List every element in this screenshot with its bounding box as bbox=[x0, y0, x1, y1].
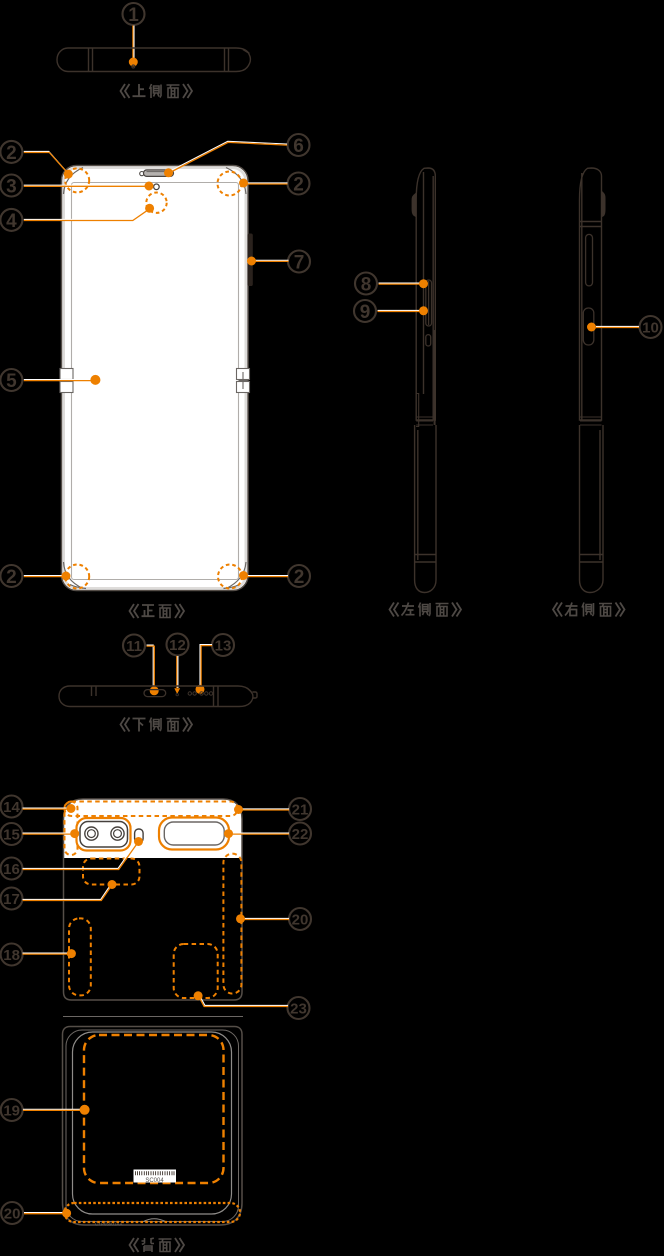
svg-text:9: 9 bbox=[360, 302, 371, 323]
svg-text:5: 5 bbox=[6, 371, 17, 392]
svg-text:8: 8 bbox=[361, 274, 372, 295]
svg-text:13: 13 bbox=[215, 638, 232, 655]
svg-text:14: 14 bbox=[3, 799, 20, 816]
svg-text:6: 6 bbox=[293, 136, 304, 157]
svg-text:22: 22 bbox=[292, 826, 309, 843]
svg-text:18: 18 bbox=[3, 947, 20, 964]
svg-text:16: 16 bbox=[3, 861, 20, 878]
svg-text:10: 10 bbox=[642, 320, 659, 337]
svg-text:4: 4 bbox=[6, 211, 17, 232]
svg-text:11: 11 bbox=[126, 638, 142, 655]
svg-text:2: 2 bbox=[6, 143, 17, 164]
svg-text:20: 20 bbox=[292, 912, 309, 929]
svg-text:7: 7 bbox=[294, 252, 305, 273]
svg-text:2: 2 bbox=[293, 174, 304, 195]
svg-text:1: 1 bbox=[128, 5, 139, 26]
svg-text:19: 19 bbox=[3, 1103, 20, 1120]
svg-text:3: 3 bbox=[6, 176, 17, 197]
svg-text:SC004: SC004 bbox=[145, 1178, 164, 1184]
svg-text:17: 17 bbox=[3, 891, 20, 908]
svg-text:21: 21 bbox=[292, 802, 309, 819]
svg-text:15: 15 bbox=[3, 827, 20, 844]
svg-text:20: 20 bbox=[4, 1206, 21, 1223]
svg-text:2: 2 bbox=[294, 567, 305, 588]
svg-text:23: 23 bbox=[290, 1001, 307, 1018]
svg-text:12: 12 bbox=[169, 637, 186, 654]
svg-text:2: 2 bbox=[6, 567, 17, 588]
